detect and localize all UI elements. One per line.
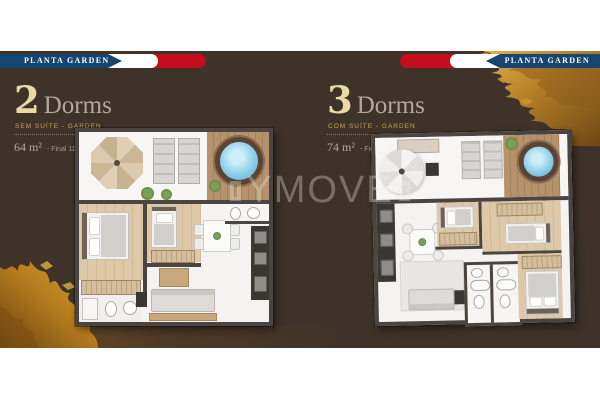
interior-wall [225,221,269,224]
pillow [89,217,100,235]
plan-2dorms-number: 2 [14,85,40,115]
chair-icon [230,238,240,250]
plan-2dorms-word: Dorms [44,92,112,120]
bathrooms [464,261,523,326]
bathroom1 [79,295,141,322]
top-white-band [0,0,600,51]
headboard [82,213,87,259]
wardrobe-icon [81,280,141,295]
chair-icon [194,224,204,236]
garden-terrace [375,134,568,204]
blanket [154,224,174,245]
blanket [456,209,471,225]
sofa-icon [408,288,454,310]
toilet-icon [499,294,510,308]
chair-icon [194,238,204,250]
toilet-icon [473,295,484,309]
plant-icon [505,137,518,150]
blanket [528,273,556,297]
jacuzzi-icon [518,141,559,182]
pillow [447,210,456,225]
pillow [543,296,556,306]
plan-2dorms-final: - Final 11 [47,146,76,153]
blanket [508,226,535,242]
chair-icon [402,250,413,261]
blanket [101,215,126,257]
sideboard-icon [149,313,217,321]
parasol-icon [379,149,424,194]
jacuzzi-icon [215,137,263,185]
chair-icon [230,224,240,236]
side-table-icon [136,292,147,307]
wardrobe-icon [522,255,562,269]
chair-icon [432,250,443,261]
pillow [529,297,542,307]
single-bed-icon [151,206,177,248]
single-bed-icon [440,206,474,229]
wardrobe-icon [496,203,542,217]
plan-2dorms-area: 64 m² [14,140,42,155]
shower-icon [82,298,98,320]
sink-icon [497,267,509,277]
sofa-back [410,303,454,309]
plant-icon [161,189,172,200]
fridge-icon [254,276,267,292]
interior-wall [435,246,482,250]
sun-lounger-icon [483,140,503,178]
plant-icon [209,180,221,192]
pillow [156,213,173,223]
headboard [527,308,559,314]
sink-icon [380,234,393,247]
plan-2dorms-title: 2 Dorms [14,85,164,120]
floor-plan-2dorms [75,128,273,326]
kitchen-counter-icon [251,226,269,300]
banner-left-label: PLANTA GARDEN [0,54,122,68]
plant-icon [418,238,426,246]
banner-right-label: PLANTA GARDEN [486,54,600,68]
parasol-pole-icon [399,168,405,174]
headboard [152,207,176,211]
sun-lounger-icon [153,138,175,184]
stove-icon [380,210,393,223]
double-bed-icon [81,212,129,260]
plan-3dorms-word: Dorms [357,92,425,120]
wardrobe-icon [151,250,195,263]
plant-icon [213,232,221,240]
wardrobe-icon [439,232,477,246]
wood-deck [503,134,560,197]
headboard [441,208,445,228]
bottom-white-band [0,348,600,400]
sink-icon [123,301,137,315]
bathtub-icon [470,280,490,291]
pillow [535,227,544,241]
parasol-icon [91,137,143,189]
bathtub-icon [496,279,516,290]
stove-icon [254,231,267,244]
bathroom-divider-wall [490,265,494,323]
sink-icon [247,207,260,219]
garden-terrace [79,132,269,204]
sofa-back [152,290,214,295]
brochure-page: PLANTA GARDEN PLANTA GARDEN 2 Dorms SEM … [0,0,600,400]
sun-lounger-icon [178,138,200,184]
plan-3dorms-number: 3 [327,85,353,115]
desk-icon [159,268,189,287]
kitchen-counter-icon [376,204,396,282]
dining-table-icon [409,229,436,256]
dining-table-icon [203,220,231,252]
floor-plan-3dorms [371,130,575,326]
pillow [89,238,100,256]
toilet-icon [230,207,241,220]
sink-icon [254,252,267,265]
double-bed-icon [525,270,560,315]
interior-wall [147,263,201,267]
sink-icon [471,268,483,278]
banner-right-blue-segment: PLANTA GARDEN [486,54,600,68]
bathroom2 [225,204,269,221]
parasol-pole-icon [114,160,120,166]
headboard [546,223,550,242]
toilet-icon [105,301,117,317]
sun-lounger-icon [461,141,481,179]
side-table-icon [426,163,439,176]
wood-deck [207,132,269,200]
plan-3dorms-area: 74 m² [327,140,355,155]
sofa-icon [151,289,215,312]
single-bed-icon [505,222,551,244]
banner-left-blue-segment: PLANTA GARDEN [0,54,122,68]
plant-icon [141,187,154,200]
fridge-icon [381,260,394,276]
